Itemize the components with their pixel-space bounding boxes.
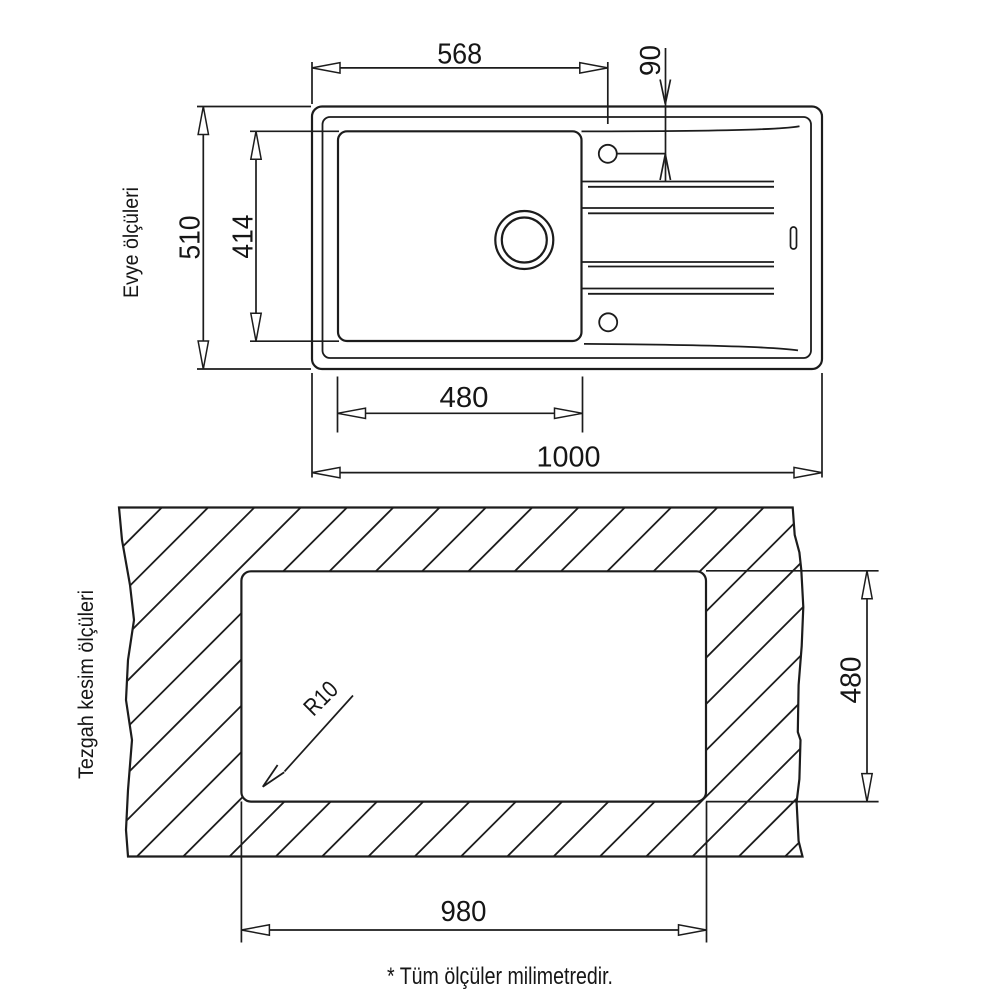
svg-text:Evye ölçüleri: Evye ölçüleri <box>120 187 143 298</box>
svg-text:568: 568 <box>437 39 482 71</box>
svg-text:414: 414 <box>228 215 260 259</box>
svg-text:480: 480 <box>440 382 489 414</box>
svg-text:90: 90 <box>635 45 667 76</box>
svg-text:980: 980 <box>441 896 487 928</box>
svg-text:480: 480 <box>836 657 868 704</box>
svg-text:510: 510 <box>175 216 207 260</box>
svg-text:* Tüm ölçüler milimetredir.: * Tüm ölçüler milimetredir. <box>387 963 613 990</box>
svg-text:Tezgah kesim ölçüleri: Tezgah kesim ölçüleri <box>75 590 98 779</box>
svg-text:1000: 1000 <box>537 442 601 474</box>
